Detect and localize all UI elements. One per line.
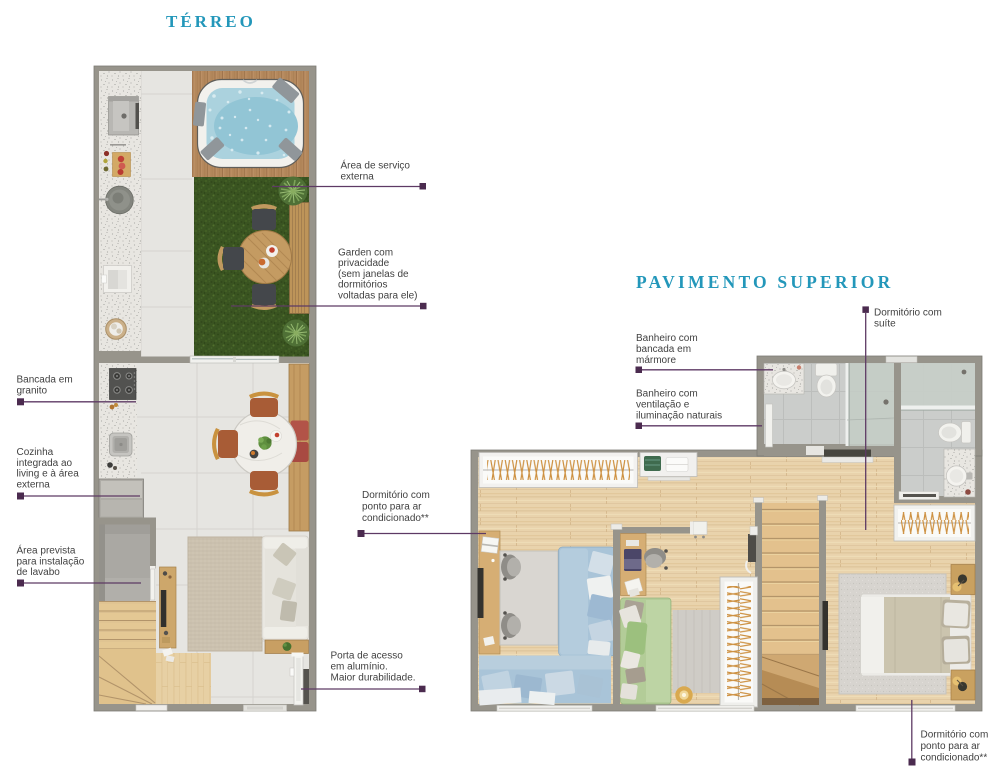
svg-text:ventilação e: ventilação e [636,400,690,411]
svg-text:iluminação naturais: iluminação naturais [636,411,722,422]
svg-text:Maior durabilidade.: Maior durabilidade. [331,673,416,684]
svg-text:Cozinha: Cozinha [17,447,54,458]
svg-text:Dormitório com: Dormitório com [874,308,942,319]
svg-text:Área prevista: Área prevista [17,544,76,557]
svg-text:(sem janelas de: (sem janelas de [338,269,409,280]
svg-text:living e à área: living e à área [17,469,80,480]
svg-text:condicionado**: condicionado** [921,753,988,764]
svg-text:em alumínio.: em alumínio. [331,662,388,673]
svg-text:Porta de acesso: Porta de acesso [331,651,404,662]
svg-text:externa: externa [17,479,51,490]
svg-text:Banheiro com: Banheiro com [636,333,698,344]
svg-text:TÉRREO: TÉRREO [166,12,256,31]
svg-text:para instalação: para instalação [17,556,85,567]
svg-text:Dormitório com: Dormitório com [921,730,989,741]
svg-text:externa: externa [341,171,375,182]
svg-text:Garden com: Garden com [338,247,393,258]
svg-text:voltadas para ele): voltadas para ele) [338,291,418,302]
svg-text:Dormitório com: Dormitório com [362,490,430,501]
svg-text:Área de serviço: Área de serviço [341,159,411,172]
svg-text:de lavabo: de lavabo [17,567,61,578]
svg-text:bancada em: bancada em [636,344,691,355]
svg-text:Banheiro com: Banheiro com [636,389,698,400]
svg-text:suíte: suíte [874,319,896,330]
svg-text:privacidade: privacidade [338,258,390,269]
svg-text:Bancada em: Bancada em [17,375,73,386]
svg-text:integrada ao: integrada ao [17,458,73,469]
svg-text:ponto para ar: ponto para ar [362,501,422,512]
svg-text:ponto para ar: ponto para ar [921,741,981,752]
svg-text:mármore: mármore [636,355,676,366]
svg-text:dormitórios: dormitórios [338,280,387,291]
svg-text:PAVIMENTO SUPERIOR: PAVIMENTO SUPERIOR [636,272,893,292]
svg-text:condicionado**: condicionado** [362,513,429,524]
svg-text:granito: granito [17,385,48,396]
